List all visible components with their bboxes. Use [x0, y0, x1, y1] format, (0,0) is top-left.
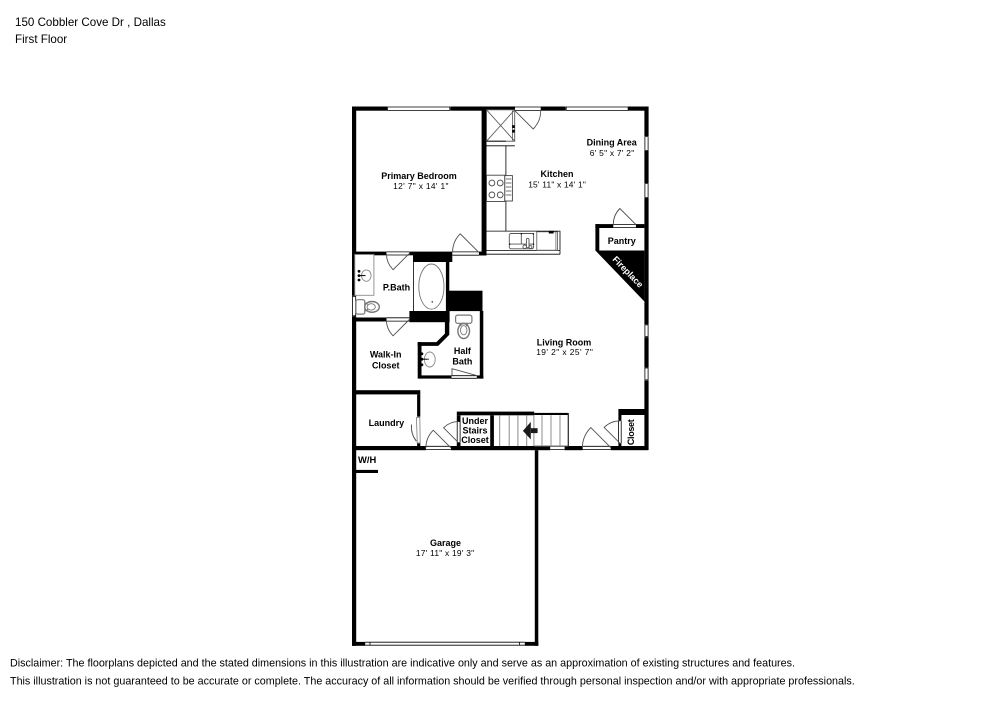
svg-text:Closet: Closet — [461, 435, 489, 445]
svg-text:Stairs: Stairs — [462, 425, 487, 435]
svg-text:Walk-In: Walk-In — [370, 349, 402, 359]
svg-text:Closet: Closet — [372, 360, 400, 370]
svg-text:17' 11" x 19' 3": 17' 11" x 19' 3" — [416, 548, 474, 558]
svg-text:This illustration is not guara: This illustration is not guaranteed to b… — [10, 675, 855, 687]
svg-text:Laundry: Laundry — [369, 418, 405, 428]
svg-text:6' 5" x 7' 2": 6' 5" x 7' 2" — [590, 148, 634, 158]
svg-text:Kitchen: Kitchen — [540, 169, 573, 179]
svg-text:Half: Half — [454, 346, 472, 356]
svg-text:Primary Bedroom: Primary Bedroom — [381, 171, 457, 181]
svg-text:Garage: Garage — [430, 538, 461, 548]
svg-text:Bath: Bath — [452, 357, 472, 367]
svg-text:Living Room: Living Room — [537, 337, 592, 347]
svg-text:First Floor: First Floor — [15, 33, 67, 46]
svg-text:12' 7" x 14' 1": 12' 7" x 14' 1" — [393, 181, 448, 191]
svg-text:Under: Under — [462, 416, 489, 426]
svg-text:150 Cobbler Cove Dr , Dallas: 150 Cobbler Cove Dr , Dallas — [15, 16, 166, 29]
svg-text:Dining Area: Dining Area — [587, 137, 638, 147]
svg-text:Closet: Closet — [626, 419, 636, 445]
svg-text:15' 11" x 14' 1": 15' 11" x 14' 1" — [528, 179, 586, 189]
svg-text:W/H: W/H — [358, 454, 376, 465]
svg-text:Disclaimer: The floorplans dep: Disclaimer: The floorplans depicted and … — [10, 658, 795, 670]
svg-text:19' 2" x 25' 7": 19' 2" x 25' 7" — [536, 347, 593, 357]
svg-text:P.Bath: P.Bath — [383, 282, 410, 292]
svg-text:Pantry: Pantry — [608, 236, 636, 246]
